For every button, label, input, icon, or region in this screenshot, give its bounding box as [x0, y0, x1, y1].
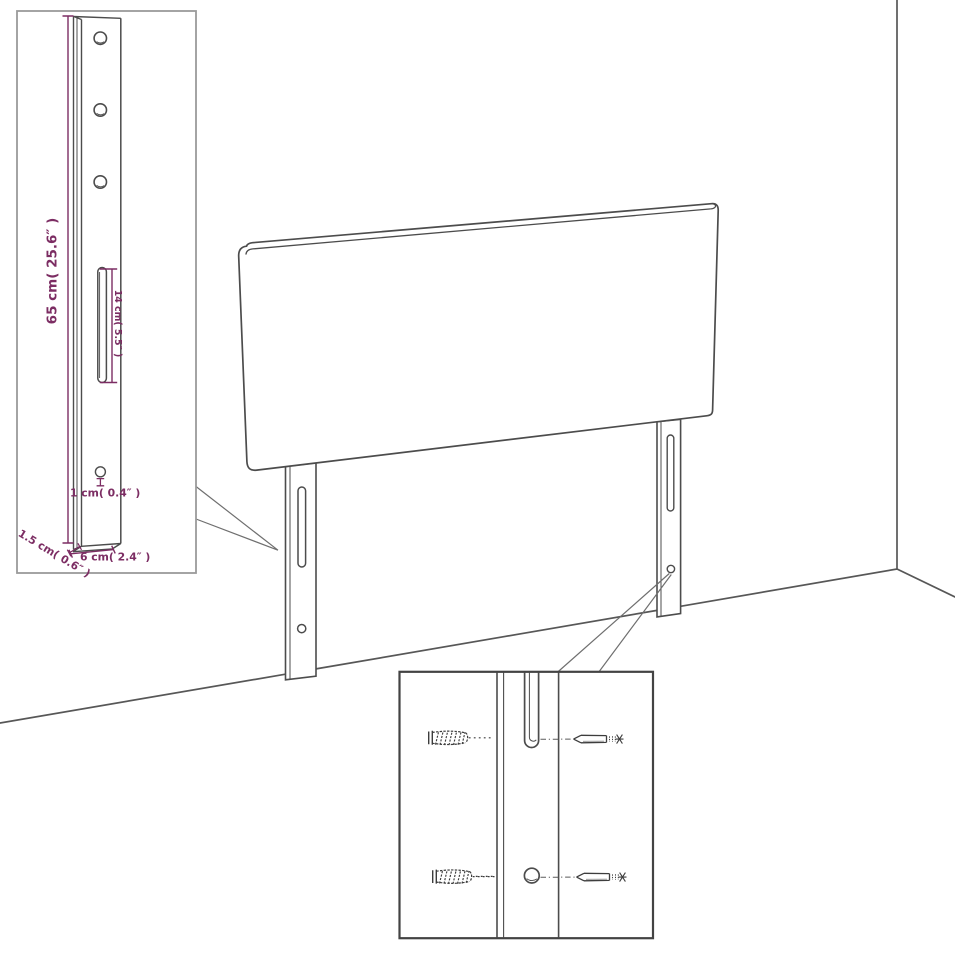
leader-lines	[196, 487, 671, 672]
right-leg	[657, 419, 681, 617]
diagram-svg: 65 cm( 25.6″ ) 14 cm( 5.5″ ) 1 cm( 0.4″ …	[0, 0, 955, 955]
label-height: 65 cm( 25.6″ )	[45, 218, 61, 325]
floor-line-left	[0, 674, 286, 723]
leader-wedge-bottom-inset	[558, 574, 671, 672]
leader-wedge-left-inset	[196, 487, 278, 551]
right-leg-hole	[667, 565, 674, 572]
left-leg-slot	[298, 487, 306, 567]
inset-mounting-box	[400, 672, 654, 938]
floor-line-middle	[316, 610, 657, 669]
label-width: 6 cm( 2.4″ )	[80, 551, 150, 564]
left-leg	[286, 463, 317, 680]
label-slot: 14 cm( 5.5″ )	[112, 290, 123, 358]
inset-mounting-detail	[400, 672, 654, 938]
label-hole: 1 cm( 0.4″ )	[70, 487, 140, 500]
floor-line-right	[681, 569, 955, 606]
right-leg-slot	[667, 435, 674, 511]
headboard-panel	[239, 204, 719, 471]
headboard-dimension-diagram: 65 cm( 25.6″ ) 14 cm( 5.5″ ) 1 cm( 0.4″ …	[0, 0, 955, 955]
inset-leg-dimensions: 65 cm( 25.6″ ) 14 cm( 5.5″ ) 1 cm( 0.4″ …	[16, 11, 196, 580]
left-leg-hole	[298, 625, 306, 633]
